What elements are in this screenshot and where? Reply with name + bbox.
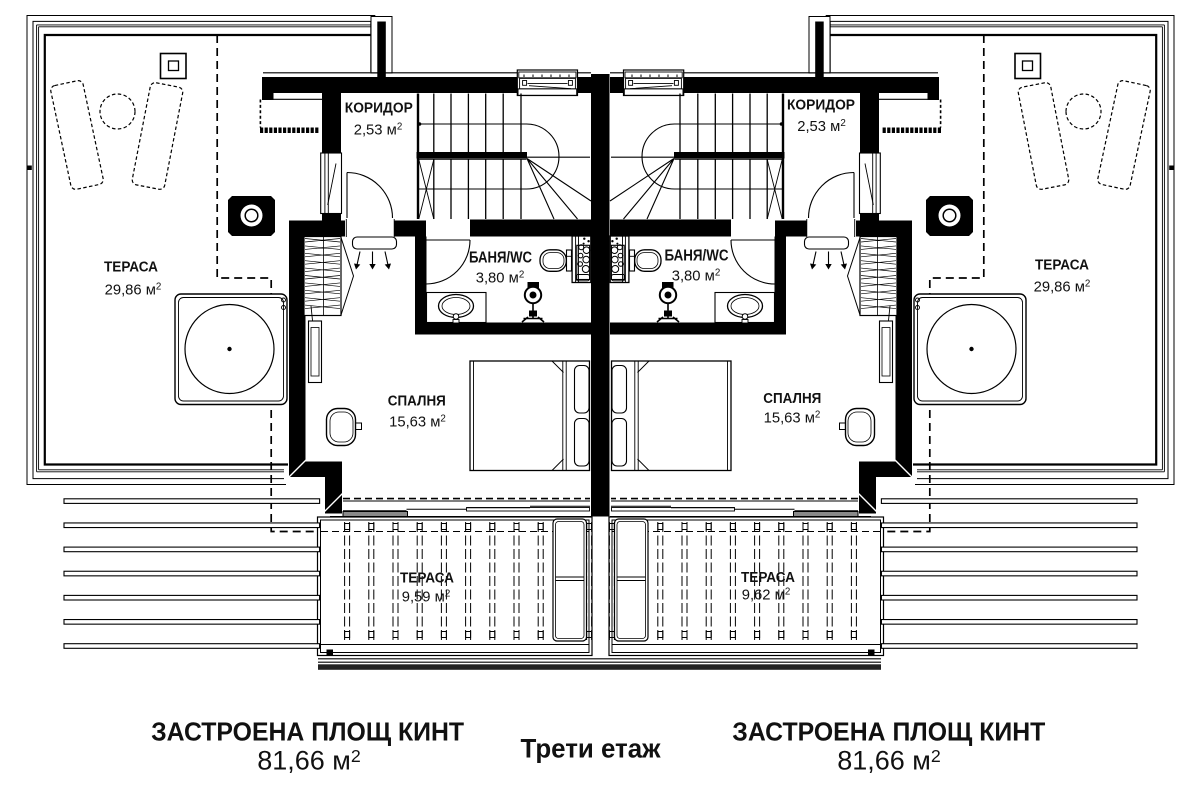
svg-text:ЗАСТРОЕНА ПЛОЩ КИНТ: ЗАСТРОЕНА ПЛОЩ КИНТ <box>151 719 464 747</box>
svg-text:КОРИДОР: КОРИДОР <box>345 100 413 117</box>
svg-text:Трети етаж: Трети етаж <box>521 734 662 764</box>
svg-text:29,86 м2: 29,86 м2 <box>105 282 162 299</box>
svg-text:СПАЛНЯ: СПАЛНЯ <box>388 393 446 410</box>
svg-text:15,63 м2: 15,63 м2 <box>764 410 821 427</box>
svg-text:2,53 м2: 2,53 м2 <box>354 122 403 139</box>
svg-text:3,80 м2: 3,80 м2 <box>672 268 721 285</box>
svg-text:ТЕРАСА: ТЕРАСА <box>400 570 454 587</box>
svg-text:КОРИДОР: КОРИДОР <box>787 97 855 114</box>
svg-text:БАНЯ/WC: БАНЯ/WC <box>469 250 532 267</box>
svg-text:81,66 м2: 81,66 м2 <box>837 746 941 776</box>
svg-text:2,53 м2: 2,53 м2 <box>797 118 846 135</box>
svg-text:ТЕРАСА: ТЕРАСА <box>1035 257 1089 274</box>
svg-text:БАНЯ/WC: БАНЯ/WC <box>665 248 729 265</box>
svg-text:29,86 м2: 29,86 м2 <box>1034 279 1091 296</box>
svg-text:9,59 м2: 9,59 м2 <box>402 589 451 606</box>
svg-text:ТЕРАСА: ТЕРАСА <box>741 569 795 586</box>
svg-text:15,63 м2: 15,63 м2 <box>389 414 446 431</box>
svg-text:СПАЛНЯ: СПАЛНЯ <box>763 390 821 407</box>
svg-text:ЗАСТРОЕНА ПЛОЩ КИНТ: ЗАСТРОЕНА ПЛОЩ КИНТ <box>732 719 1045 747</box>
svg-text:ТЕРАСА: ТЕРАСА <box>104 259 158 276</box>
svg-text:9,62 м2: 9,62 м2 <box>742 587 791 604</box>
svg-text:81,66 м2: 81,66 м2 <box>257 746 361 776</box>
svg-text:3,80 м2: 3,80 м2 <box>476 270 525 287</box>
